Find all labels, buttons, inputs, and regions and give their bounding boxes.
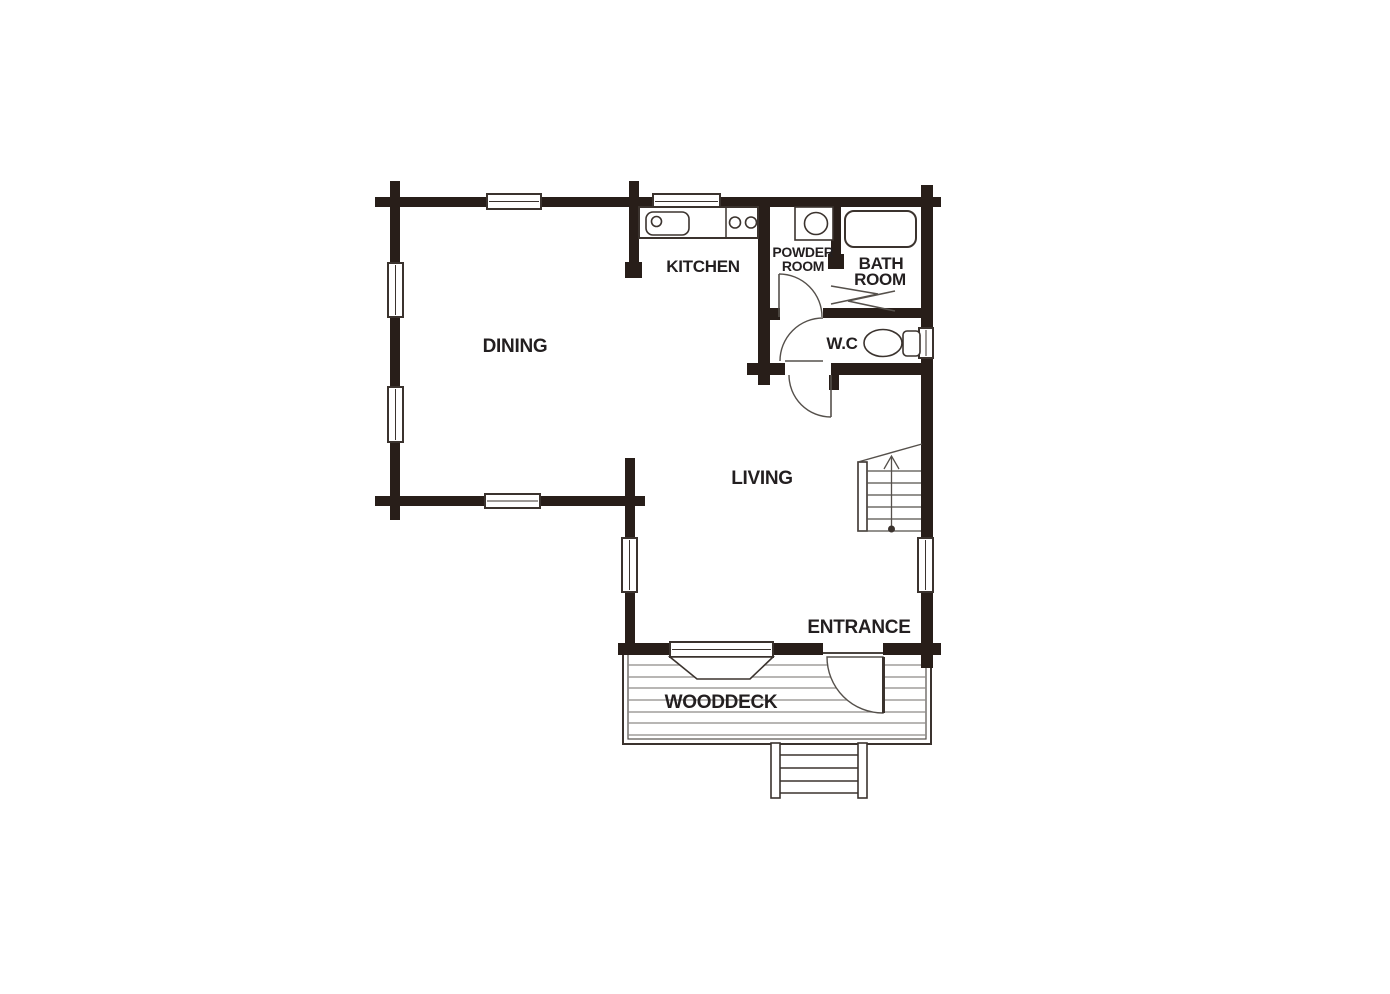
layer-walls: [375, 181, 941, 668]
floor-plan-page: DININGKITCHENPOWDERROOMBATHROOMW.CLIVING…: [0, 0, 1390, 994]
layer-windows: [388, 194, 933, 657]
label-powder-room-line2: ROOM: [782, 258, 824, 274]
bathtub: [845, 211, 916, 247]
layer-stairs: [858, 444, 922, 533]
label-living: LIVING: [731, 468, 793, 489]
label-entrance: ENTRANCE: [807, 617, 910, 638]
deck-steps-rail-left: [771, 743, 780, 798]
label-dining: DINING: [483, 336, 548, 357]
toilet-tank: [903, 331, 920, 356]
wall-kitchen-divider-cap: [625, 262, 642, 278]
wall-corridor-south-stub: [747, 363, 785, 375]
stair-start-dot: [888, 526, 895, 533]
wall-bath-south: [823, 308, 933, 318]
powder-room-door-arc: [779, 274, 822, 317]
wall-exterior-left: [390, 181, 400, 520]
wall-kitchen-divider: [629, 181, 639, 262]
label-wc: W.C: [826, 334, 857, 353]
powder-basin: [805, 213, 828, 235]
wall-exterior-right: [921, 185, 933, 668]
deck-steps-rail-right: [858, 743, 867, 798]
stove-burner-left: [730, 217, 741, 228]
stove-burner-right: [746, 217, 757, 228]
wall-powder-west: [758, 207, 770, 385]
toilet-bowl: [864, 330, 902, 357]
hallway-door-arc: [789, 375, 831, 417]
wall-wc-south: [831, 363, 933, 375]
stair-side-rail: [858, 462, 867, 531]
floor-plan-svg: DININGKITCHENPOWDERROOMBATHROOMW.CLIVING…: [0, 0, 1390, 994]
kitchen-faucet: [652, 217, 662, 227]
wc-door-arc: [780, 318, 823, 361]
label-kitchen: KITCHEN: [666, 257, 739, 276]
label-wooddeck: WOODDECK: [665, 692, 778, 713]
label-bath-room-line2: ROOM: [854, 270, 906, 289]
